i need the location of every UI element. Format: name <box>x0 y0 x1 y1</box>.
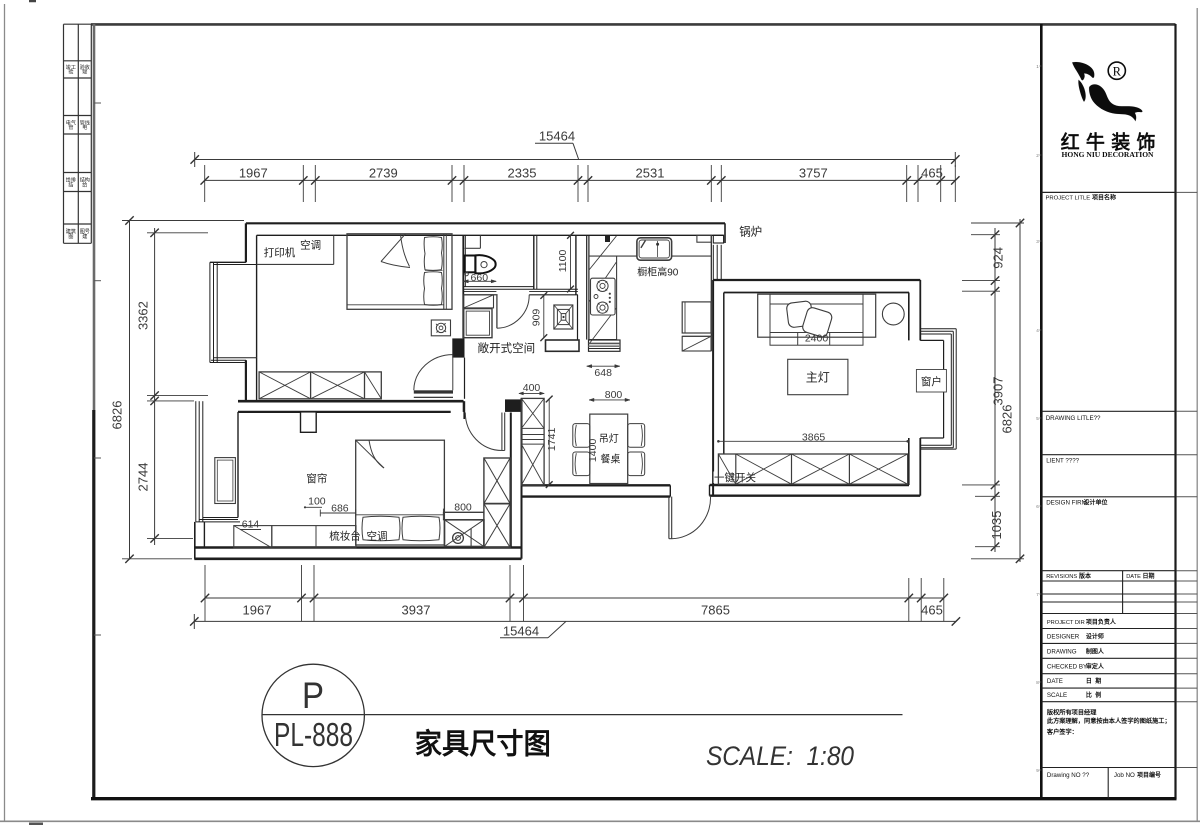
svg-text:LIENT ????: LIENT ???? <box>1046 457 1079 464</box>
svg-text:Drawing NO ??: Drawing NO ?? <box>1047 772 1090 779</box>
svg-text:1967: 1967 <box>243 603 272 618</box>
svg-text:客户签字：: 客户签字： <box>1046 728 1078 736</box>
svg-text:9: 9 <box>1036 768 1039 773</box>
svg-text:465: 465 <box>921 166 943 181</box>
svg-text:1100: 1100 <box>557 250 569 273</box>
svg-text:3907: 3907 <box>991 377 1006 406</box>
svg-text:版权所有项目经理: 版权所有项目经理 <box>1046 708 1097 716</box>
svg-text:3937: 3937 <box>402 603 431 618</box>
svg-text:橱柜高90: 橱柜高90 <box>637 265 679 278</box>
svg-text:1967: 1967 <box>239 166 268 181</box>
svg-text:此方案理解，同意按由本人签字的图纸施工；: 此方案理解，同意按由本人签字的图纸施工； <box>1047 717 1171 725</box>
svg-text:465: 465 <box>921 603 943 618</box>
svg-text:6: 6 <box>1036 504 1039 509</box>
svg-text:窗帘: 窗帘 <box>306 472 327 485</box>
svg-text:结: 结 <box>68 181 73 188</box>
svg-text:HONG NIU DECORATION: HONG NIU DECORATION <box>1062 150 1155 159</box>
svg-text:3: 3 <box>1036 239 1039 244</box>
svg-text:打印机: 打印机 <box>264 246 296 259</box>
svg-text:100: 100 <box>308 496 326 508</box>
svg-text:比 例: 比 例 <box>1086 691 1101 699</box>
svg-text:日 期: 日 期 <box>1086 677 1101 685</box>
svg-text:竣: 竣 <box>82 69 87 76</box>
svg-text:P: P <box>302 675 324 716</box>
svg-text:版本: 版本 <box>1078 572 1092 580</box>
svg-text:SCALE: SCALE <box>1047 692 1067 699</box>
svg-text:5: 5 <box>1036 416 1039 421</box>
svg-text:7: 7 <box>1036 592 1039 597</box>
svg-text:项目编号: 项目编号 <box>1137 771 1161 779</box>
svg-text:DESIGNER: DESIGNER <box>1047 634 1080 641</box>
svg-text:验: 验 <box>68 69 73 76</box>
svg-text:DESIGN FIRM: DESIGN FIRM <box>1046 500 1087 507</box>
svg-text:1400: 1400 <box>587 439 599 463</box>
svg-text:648: 648 <box>594 367 612 379</box>
svg-text:6826: 6826 <box>110 401 125 430</box>
svg-text:6826: 6826 <box>1000 405 1015 434</box>
svg-text:给: 给 <box>82 181 87 188</box>
svg-text:设计师: 设计师 <box>1086 633 1104 641</box>
svg-text:项目负责人: 项目负责人 <box>1086 618 1117 626</box>
svg-text:DATE: DATE <box>1047 678 1063 685</box>
svg-text:2531: 2531 <box>636 166 665 181</box>
svg-text:DATE: DATE <box>1126 574 1141 580</box>
svg-text:2400: 2400 <box>805 333 829 345</box>
svg-text:800: 800 <box>605 389 623 401</box>
svg-text:924: 924 <box>991 247 1006 269</box>
svg-text:PL-888: PL-888 <box>274 716 353 753</box>
svg-text:SCALE: 1:80: SCALE: 1:80 <box>706 741 854 771</box>
svg-text:DRAWING LITLE??: DRAWING LITLE?? <box>1046 415 1101 422</box>
svg-text:敞开式空间: 敞开式空间 <box>478 341 535 355</box>
svg-text:4: 4 <box>1036 328 1039 333</box>
svg-text:15464: 15464 <box>503 624 539 639</box>
svg-text:8: 8 <box>1036 680 1039 685</box>
svg-text:餐桌: 餐桌 <box>600 453 620 466</box>
svg-text:PROJECT DIR: PROJECT DIR <box>1047 620 1085 626</box>
svg-text:2744: 2744 <box>135 463 150 492</box>
svg-text:3757: 3757 <box>799 166 828 181</box>
svg-text:吊灯: 吊灯 <box>599 433 619 445</box>
svg-text:3362: 3362 <box>135 301 150 330</box>
svg-text:1741: 1741 <box>546 428 558 452</box>
svg-text:2335: 2335 <box>508 166 537 181</box>
svg-text:管: 管 <box>68 124 73 131</box>
svg-text:400: 400 <box>523 382 541 394</box>
svg-text:家具尺寸图: 家具尺寸图 <box>415 728 551 761</box>
svg-text:空调: 空调 <box>300 238 321 251</box>
svg-text:图: 图 <box>68 234 73 240</box>
svg-text:梳妆台: 梳妆台 <box>329 530 361 543</box>
svg-text:主灯: 主灯 <box>806 371 830 385</box>
svg-text:日期: 日期 <box>1143 572 1155 580</box>
svg-text:2: 2 <box>1036 153 1039 158</box>
svg-text:设计单位: 设计单位 <box>1084 499 1108 507</box>
svg-text:614: 614 <box>242 519 260 531</box>
svg-text:PROJECT LITLE: PROJECT LITLE <box>1046 196 1091 202</box>
svg-text:REVISIONS: REVISIONS <box>1046 574 1077 580</box>
svg-text:Job NO: Job NO <box>1114 772 1135 779</box>
svg-text:项目名称: 项目名称 <box>1092 194 1116 202</box>
svg-text:CHECKED BY: CHECKED BY <box>1047 663 1087 670</box>
svg-text:电: 电 <box>82 124 87 131</box>
svg-text:审定人: 审定人 <box>1086 662 1105 670</box>
svg-text:空调: 空调 <box>367 530 388 543</box>
svg-text:制图人: 制图人 <box>1086 648 1105 656</box>
svg-text:909: 909 <box>531 309 543 327</box>
svg-text:1: 1 <box>1036 64 1039 69</box>
svg-text:R: R <box>1113 64 1122 78</box>
svg-text:1035: 1035 <box>989 511 1004 540</box>
svg-text:窗户: 窗户 <box>921 375 942 388</box>
svg-text:建: 建 <box>82 233 87 240</box>
svg-text:锅炉: 锅炉 <box>739 224 762 238</box>
svg-text:7865: 7865 <box>701 603 730 618</box>
svg-text:15464: 15464 <box>539 129 575 144</box>
svg-text:DRAWING: DRAWING <box>1047 649 1077 656</box>
svg-text:660: 660 <box>471 272 489 284</box>
svg-text:2739: 2739 <box>369 166 398 181</box>
